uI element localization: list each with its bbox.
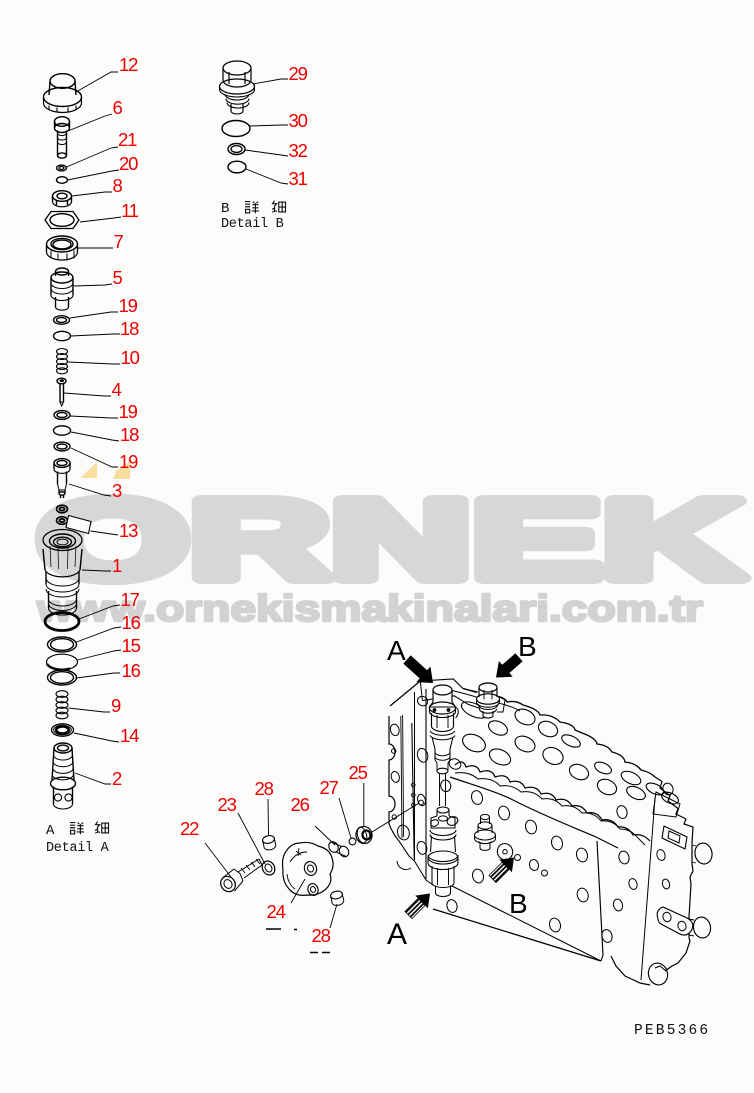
svg-text:31: 31 bbox=[289, 168, 308, 189]
svg-text:22: 22 bbox=[180, 818, 199, 839]
svg-text:6: 6 bbox=[113, 97, 123, 118]
svg-text:18: 18 bbox=[120, 424, 139, 445]
svg-text:15: 15 bbox=[122, 635, 141, 656]
svg-text:ORNEK: ORNEK bbox=[37, 477, 743, 602]
svg-text:18: 18 bbox=[120, 318, 139, 339]
svg-text:32: 32 bbox=[289, 140, 308, 161]
svg-text:21: 21 bbox=[118, 129, 137, 150]
svg-text:26: 26 bbox=[291, 794, 310, 815]
svg-text:13: 13 bbox=[119, 520, 138, 541]
svg-text:28: 28 bbox=[255, 778, 274, 799]
svg-text:24: 24 bbox=[267, 901, 286, 922]
svg-text:19: 19 bbox=[119, 451, 138, 472]
svg-text:5: 5 bbox=[113, 267, 123, 288]
svg-text:A: A bbox=[46, 823, 55, 839]
svg-text:20: 20 bbox=[119, 153, 138, 174]
svg-text:10: 10 bbox=[121, 347, 140, 368]
svg-text:25: 25 bbox=[349, 762, 368, 783]
svg-text:17: 17 bbox=[121, 589, 140, 610]
svg-text:9: 9 bbox=[111, 695, 121, 716]
svg-text:4: 4 bbox=[112, 379, 122, 400]
svg-text:B: B bbox=[221, 201, 229, 217]
svg-text:29: 29 bbox=[289, 63, 308, 84]
svg-text:PEB5366: PEB5366 bbox=[634, 1023, 710, 1039]
svg-text:Detail A: Detail A bbox=[46, 841, 110, 856]
svg-text:B: B bbox=[509, 888, 528, 919]
svg-text:8: 8 bbox=[113, 175, 123, 196]
svg-text:7: 7 bbox=[114, 231, 124, 252]
svg-text:A: A bbox=[387, 635, 406, 666]
svg-text:16: 16 bbox=[122, 612, 141, 633]
svg-text:27: 27 bbox=[320, 777, 339, 798]
svg-text:Detail B: Detail B bbox=[221, 217, 284, 232]
svg-text:28: 28 bbox=[312, 925, 331, 946]
svg-text:23: 23 bbox=[218, 794, 237, 815]
svg-text:1: 1 bbox=[112, 555, 122, 576]
svg-text:30: 30 bbox=[289, 110, 308, 131]
svg-text:B: B bbox=[518, 631, 537, 662]
svg-text:16: 16 bbox=[122, 660, 141, 681]
svg-text:19: 19 bbox=[119, 295, 138, 316]
svg-text:14: 14 bbox=[120, 725, 139, 746]
svg-text:3: 3 bbox=[112, 480, 122, 501]
svg-text:A: A bbox=[387, 918, 407, 951]
svg-text:2: 2 bbox=[112, 768, 122, 789]
svg-text:11: 11 bbox=[121, 200, 139, 221]
svg-text:12: 12 bbox=[119, 54, 138, 75]
svg-text:19: 19 bbox=[119, 401, 138, 422]
